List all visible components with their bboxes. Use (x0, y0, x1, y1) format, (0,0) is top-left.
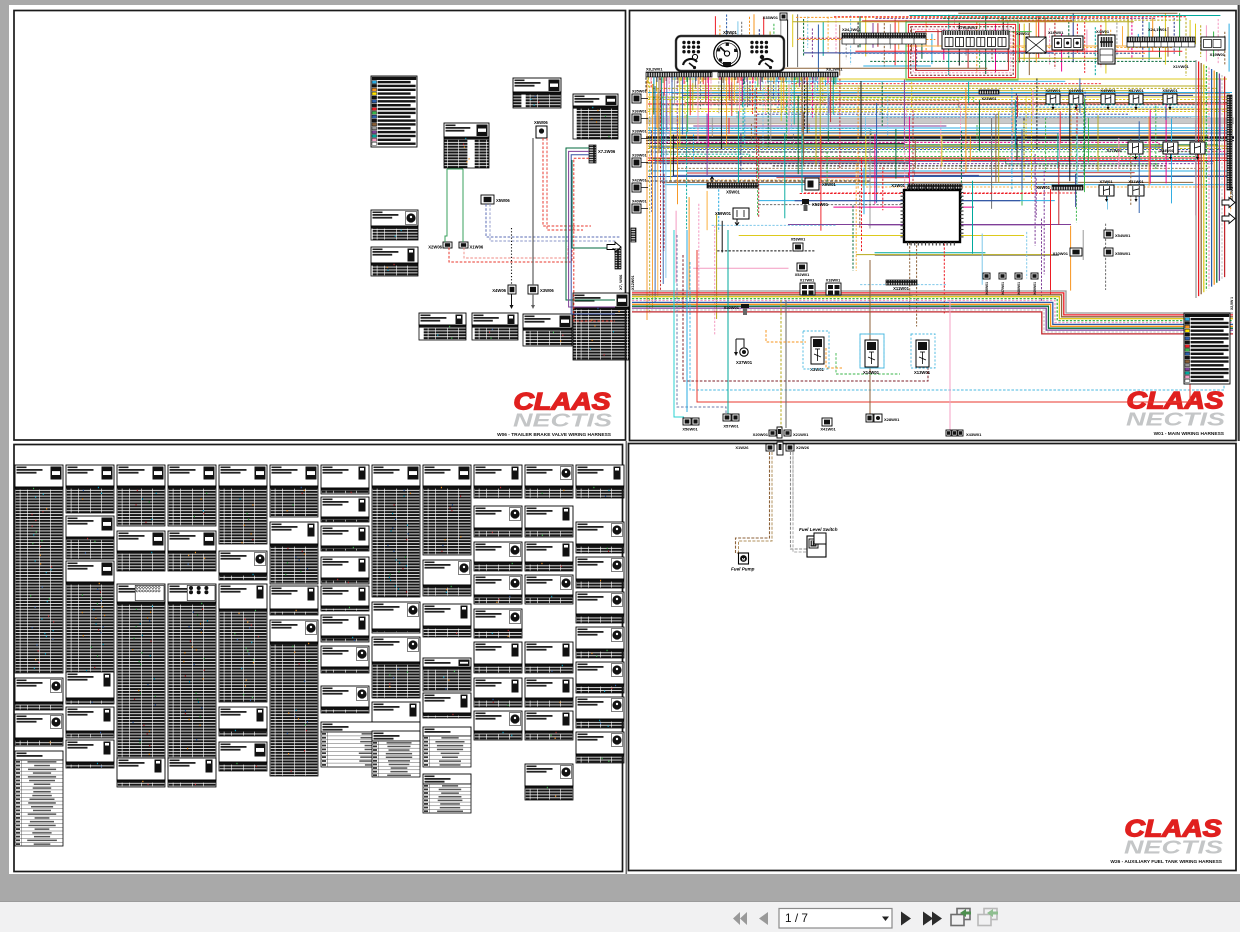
svg-text:X6W06: X6W06 (534, 120, 548, 125)
svg-text:1 / 7: 1 / 7 (785, 911, 808, 925)
svg-text:X30W01: X30W01 (724, 305, 740, 310)
svg-text:X25W01: X25W01 (1045, 88, 1061, 93)
svg-text:X8,1W01: X8,1W01 (826, 67, 843, 72)
svg-text:X13W01: X13W01 (914, 370, 931, 375)
svg-text:X7, W06: X7, W06 (618, 274, 623, 290)
svg-text:X6W01: X6W01 (1036, 185, 1050, 190)
svg-text:X1VW01: X1VW01 (1173, 64, 1190, 69)
svg-text:X7.2W06: X7.2W06 (598, 149, 616, 154)
svg-text:X1W26: X1W26 (735, 445, 749, 450)
svg-text:X8,2W01: X8,2W01 (646, 67, 663, 72)
svg-text:X2W26: X2W26 (796, 445, 810, 450)
svg-text:X41W01: X41W01 (820, 427, 836, 432)
svg-text:W01 - MAIN WIRING HARNESS: W01 - MAIN WIRING HARNESS (1154, 431, 1225, 437)
svg-text:X42W01: X42W01 (632, 179, 647, 183)
svg-text:W26 - AUXILIARY FUEL TANK WIRI: W26 - AUXILIARY FUEL TANK WIRING HARNESS (1110, 859, 1222, 865)
svg-text:X59W01: X59W01 (715, 211, 732, 216)
svg-text:X23W01: X23W01 (981, 96, 997, 101)
svg-text:X14W01: X14W01 (863, 370, 880, 375)
svg-text:X2,2W 1: X2,2W 1 (1230, 187, 1234, 200)
svg-text:X37W01: X37W01 (736, 360, 753, 365)
svg-text:X28W01: X28W01 (884, 417, 900, 422)
svg-text:X58W01: X58W01 (1162, 88, 1178, 93)
svg-text:X5W06: X5W06 (496, 198, 510, 203)
svg-text:X24,2W01: X24,2W01 (842, 27, 861, 32)
svg-text:X21W01: X21W01 (793, 432, 809, 437)
svg-text:X3W01: X3W01 (810, 367, 824, 372)
svg-text:X36W01: X36W01 (632, 110, 647, 114)
svg-text:X46W01: X46W01 (985, 282, 989, 295)
svg-text:X40W01: X40W01 (632, 200, 647, 204)
svg-text:Fuel Pump: Fuel Pump (731, 567, 755, 572)
svg-text:X31W01: X31W01 (1128, 179, 1144, 184)
svg-text:X45W01: X45W01 (1100, 88, 1116, 93)
svg-text:W06 - TRAILER BRAKE VALVE WIRI: W06 - TRAILER BRAKE VALVE WIRING HARNESS (497, 432, 612, 438)
svg-text:X2,5W 1: X2,5W 1 (1230, 297, 1234, 310)
svg-text:X9W01: X9W01 (822, 182, 836, 187)
svg-text:X2W06: X2W06 (428, 245, 442, 250)
svg-text:NECTIS: NECTIS (513, 410, 613, 431)
svg-text:X32W01: X32W01 (1128, 88, 1144, 93)
svg-text:X52W01: X52W01 (795, 273, 810, 277)
svg-text:X44W01: X44W01 (1068, 88, 1084, 93)
svg-text:NECTIS: NECTIS (1126, 409, 1226, 430)
svg-text:W01: W01 (612, 247, 619, 251)
svg-text:X1W06: X1W06 (470, 245, 484, 250)
svg-text:X10W01: X10W01 (1053, 251, 1069, 256)
svg-text:X33W01: X33W01 (763, 15, 779, 20)
svg-text:X7W01: X7W01 (1099, 179, 1113, 184)
svg-text:X1W01: X1W01 (891, 183, 905, 188)
svg-text:X54W01: X54W01 (1115, 233, 1131, 238)
svg-text:X47W01: X47W01 (1001, 282, 1005, 295)
svg-text:X3W06: X3W06 (540, 288, 554, 293)
svg-text:NECTIS: NECTIS (1124, 837, 1224, 858)
svg-text:X49W01: X49W01 (1033, 282, 1037, 295)
svg-text:X7R.3W01: X7R.3W01 (958, 25, 978, 30)
svg-text:X20W01: X20W01 (753, 432, 769, 437)
svg-text:X4W01: X4W01 (1096, 29, 1110, 34)
svg-text:X17W01: X17W01 (800, 279, 815, 283)
svg-text:X53W01: X53W01 (791, 238, 806, 242)
svg-text:X4W06: X4W06 (492, 288, 506, 293)
svg-text:X8W01: X8W01 (723, 30, 737, 35)
svg-text:X34W01: X34W01 (1160, 149, 1174, 153)
svg-text:X11W01: X11W01 (893, 286, 910, 291)
svg-text:X16W01: X16W01 (1048, 30, 1064, 35)
svg-text:X12W01: X12W01 (631, 275, 635, 290)
svg-text:X35W01: X35W01 (632, 90, 647, 94)
svg-text:X2W01: X2W01 (1016, 31, 1030, 36)
svg-text:X5W01: X5W01 (726, 190, 740, 195)
svg-text:X57W01: X57W01 (723, 424, 739, 429)
svg-text:X18W01: X18W01 (826, 279, 841, 283)
svg-text:X39W01: X39W01 (632, 154, 647, 158)
svg-text:X56W01: X56W01 (682, 427, 698, 432)
svg-text:X55W01: X55W01 (1115, 251, 1131, 256)
svg-text:X24,1W01: X24,1W01 (1148, 27, 1167, 32)
svg-text:X48W01: X48W01 (1017, 282, 1021, 295)
svg-text:X27W01: X27W01 (1107, 148, 1123, 153)
svg-text:X38W01: X38W01 (632, 130, 647, 134)
svg-text:X19W01: X19W01 (1210, 52, 1226, 57)
svg-text:X51W01: X51W01 (812, 202, 829, 207)
svg-text:X43W01: X43W01 (966, 432, 982, 437)
svg-text:Fuel Level Switch: Fuel Level Switch (799, 527, 838, 532)
